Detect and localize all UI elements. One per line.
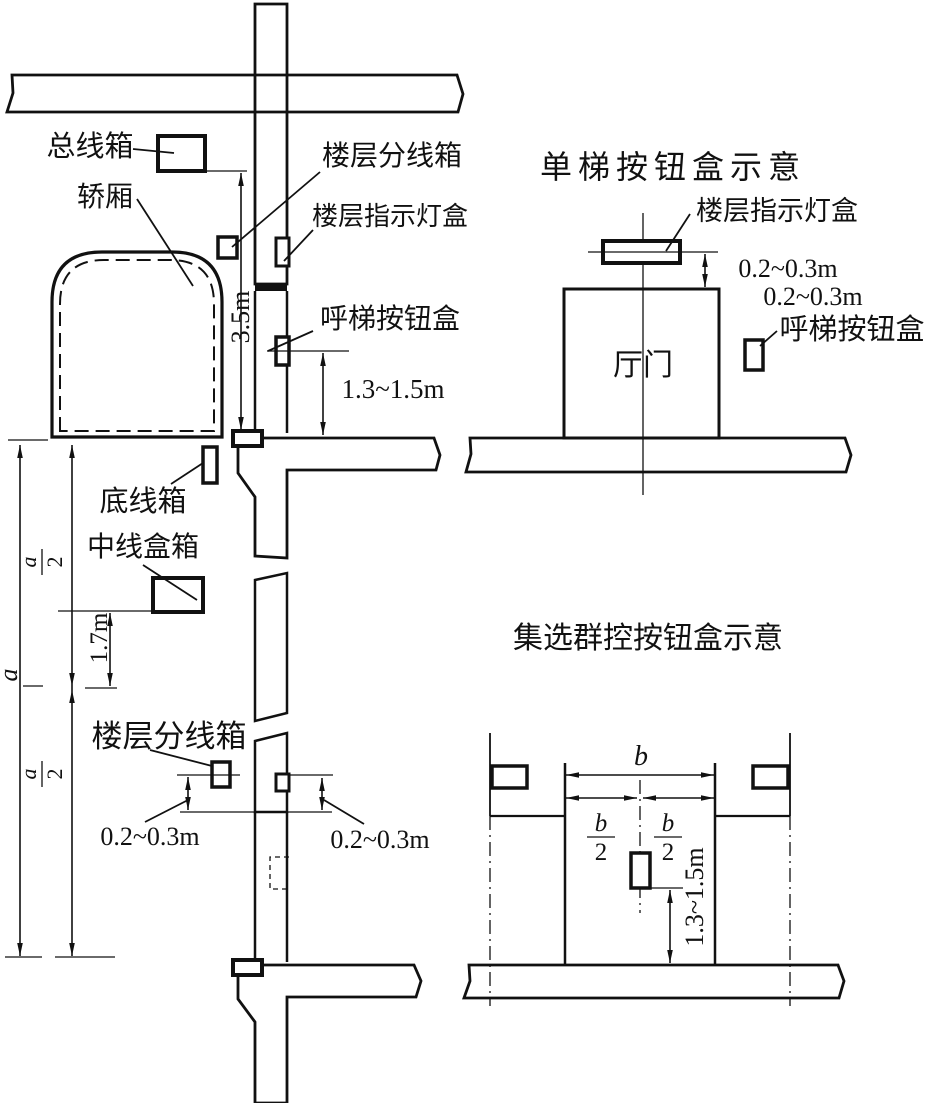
car-inner-dashed xyxy=(60,260,214,431)
dimension-branch-offset-left: 0.2~0.3m xyxy=(100,777,199,851)
adjacent-indicator-box-left xyxy=(492,766,527,788)
group-call-button-box-symbol xyxy=(631,853,650,888)
floor-indicator-box-lower-symbol xyxy=(276,774,289,791)
dimension-indicator-offset xyxy=(702,254,708,287)
adjacent-indicator-box-right xyxy=(753,766,788,788)
fraction-numerator: a xyxy=(16,769,41,780)
fraction-denominator: 2 xyxy=(42,557,67,568)
middle-floor-slab xyxy=(238,438,440,558)
label-indicator-offset: 0.2~0.3m xyxy=(738,254,837,283)
group-control-title: 集选群控按钮盒示意 xyxy=(513,622,783,655)
dim-3-5m-label: 3.5m xyxy=(226,291,255,344)
group-control-button-box-diagram: 集选群控按钮盒示意 b b xyxy=(464,622,844,1006)
floor-slab xyxy=(466,438,851,472)
leader-car xyxy=(137,199,193,286)
dimension-half-height: a 2 a 2 xyxy=(16,445,75,956)
door-sill-box-middle xyxy=(233,431,262,446)
main-line-box-symbol xyxy=(158,136,205,171)
shaft-wall-segment xyxy=(255,573,287,721)
fraction-numerator: a xyxy=(16,557,41,568)
dim-button-height-label: 1.3~1.5m xyxy=(680,847,709,946)
top-floor-slab xyxy=(7,75,463,112)
label-main-line-box: 总线箱 xyxy=(46,130,133,163)
dim-1-7m-label: 1.7m xyxy=(86,612,113,663)
label-bottom-line-box: 底线箱 xyxy=(99,485,186,518)
label-floor-branch-box-lower: 楼层分线箱 xyxy=(92,719,247,754)
floor-branch-box-symbol xyxy=(218,237,237,258)
dimension-call-height: 1.3~1.5m xyxy=(320,353,444,435)
label-indicator-box: 楼层指示灯盒 xyxy=(696,196,858,226)
dimension-branch-offset-right: 0.2~0.3m xyxy=(319,778,429,854)
fraction-a-over-2: a 2 xyxy=(16,549,67,575)
elevator-wiring-diagram-page: 3.5m 1.3~1.5m a a 2 xyxy=(0,0,931,1103)
label-middle-line-box: 中线盒箱 xyxy=(87,531,199,563)
fraction-a-over-2: a 2 xyxy=(16,761,67,787)
fraction-b-over-2: b 2 xyxy=(654,810,682,866)
label-car: 轿厢 xyxy=(77,181,133,213)
dimension-1-7m: 1.7m xyxy=(86,612,113,686)
elevator-wiring-diagram: 3.5m 1.3~1.5m a a 2 xyxy=(0,0,931,1103)
dimension-door-width-b: b xyxy=(566,741,714,778)
label-button-offset: 0.2~0.3m xyxy=(763,282,862,311)
call-button-box-symbol xyxy=(745,340,763,370)
fraction-denominator: 2 xyxy=(595,839,608,866)
bottom-line-box-symbol xyxy=(203,447,217,483)
middle-line-box-symbol xyxy=(153,578,203,612)
fraction-denominator: 2 xyxy=(662,839,675,866)
dim-offset-left-label: 0.2~0.3m xyxy=(100,822,199,851)
fraction-denominator: 2 xyxy=(42,769,67,780)
label-hall-door: 厅门 xyxy=(613,349,673,382)
single-elevator-button-box-diagram: 单梯按钮盒示意 楼层指示灯盒 0.2~0.3m 0.2~0.3m 呼梯按钮盒 厅… xyxy=(466,149,925,495)
single-elevator-title: 单梯按钮盒示意 xyxy=(540,149,806,185)
fraction-numerator: b xyxy=(595,810,608,837)
dim-offset-right-label: 0.2~0.3m xyxy=(330,825,429,854)
label-floor-branch-box: 楼层分线箱 xyxy=(322,140,462,172)
fraction-numerator: b xyxy=(662,810,675,837)
door-sill-box-bottom xyxy=(233,960,262,975)
dimension-floor-height-a: a xyxy=(0,445,23,956)
label-floor-indicator-box: 楼层指示灯盒 xyxy=(312,202,468,231)
dim-call-height-label: 1.3~1.5m xyxy=(341,374,444,404)
label-call-button-box: 呼梯按钮盒 xyxy=(779,313,924,346)
car-outline xyxy=(52,252,222,437)
dim-a-label: a xyxy=(0,669,23,682)
dim-b-label: b xyxy=(634,741,648,772)
door-lintel-band xyxy=(255,284,287,291)
shaft-elevation-section: 3.5m 1.3~1.5m a a 2 xyxy=(0,4,468,1103)
label-call-button-box: 呼梯按钮盒 xyxy=(320,303,460,335)
floor-slab xyxy=(464,965,844,998)
leader-bottom-line-box xyxy=(171,463,203,484)
floor-indicator-box-symbol xyxy=(276,238,289,266)
bottom-floor-slab xyxy=(238,965,421,1103)
dimension-3-5m: 3.5m xyxy=(226,173,255,430)
fraction-b-over-2: b 2 xyxy=(587,810,615,866)
